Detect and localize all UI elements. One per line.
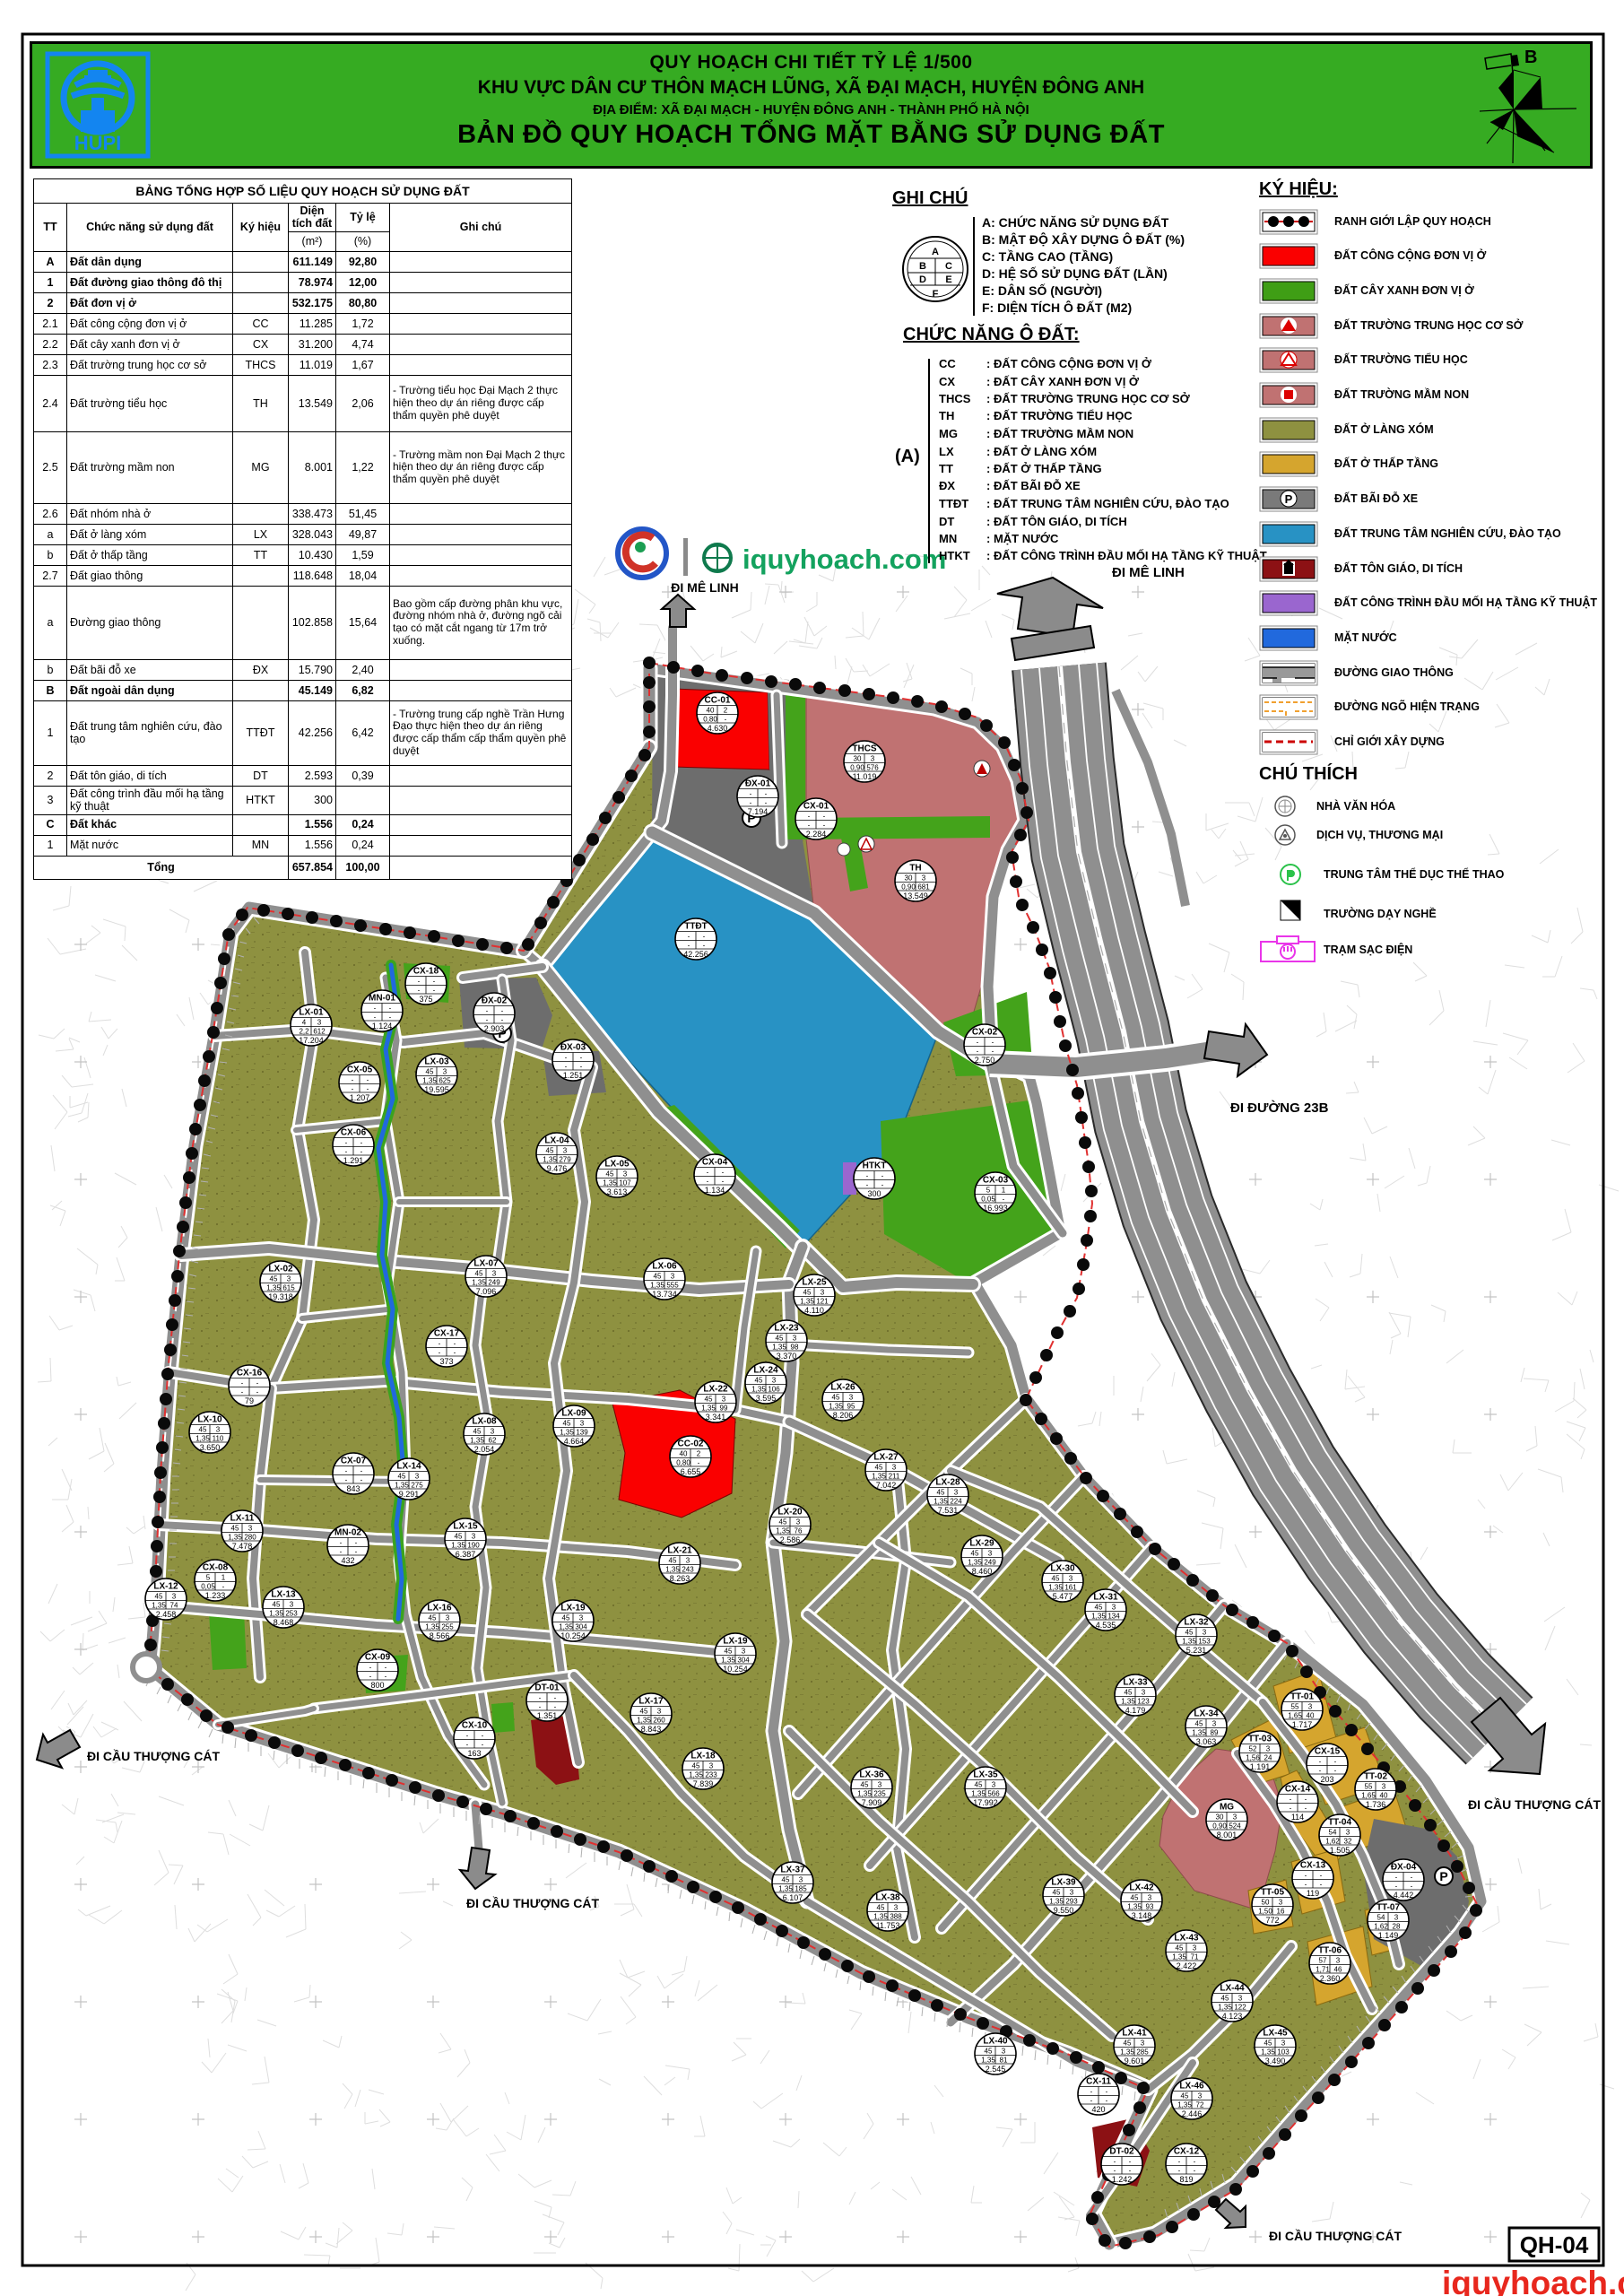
svg-text:1,35: 1,35 (266, 1284, 281, 1292)
svg-text:3: 3 (892, 1464, 897, 1472)
svg-text:45: 45 (231, 1525, 239, 1533)
svg-text:279: 279 (559, 1156, 571, 1164)
svg-text:6.655: 6.655 (681, 1467, 701, 1476)
svg-text:0,90: 0,90 (1212, 1822, 1227, 1831)
svg-text:QH-04: QH-04 (1520, 2231, 1589, 2258)
svg-text:32: 32 (1344, 1838, 1352, 1846)
svg-text:5.231: 5.231 (1186, 1646, 1207, 1655)
svg-text:4.630: 4.630 (708, 724, 728, 733)
svg-text:1,35: 1,35 (829, 1403, 843, 1411)
svg-text:LX-16: LX-16 (427, 1604, 452, 1613)
svg-text:1,35: 1,35 (470, 1437, 484, 1445)
svg-text:-: - (1320, 1881, 1323, 1889)
svg-text:3: 3 (1069, 1575, 1073, 1583)
svg-text:TT-05: TT-05 (1261, 1888, 1285, 1898)
svg-text:-: - (1114, 2167, 1116, 2175)
svg-text:1,35: 1,35 (1172, 1953, 1186, 1961)
svg-text:-: - (486, 1016, 489, 1024)
svg-text:-: - (1334, 1758, 1337, 1766)
svg-text:2.458: 2.458 (156, 1610, 177, 1619)
svg-text:P: P (1285, 492, 1293, 506)
svg-text:1,62: 1,62 (1325, 1838, 1340, 1846)
svg-text:2: 2 (697, 1450, 701, 1458)
svg-text:-: - (454, 1340, 456, 1348)
svg-text:1.505: 1.505 (1330, 1846, 1350, 1855)
svg-text:-: - (360, 1148, 363, 1156)
svg-text:134: 134 (1107, 1613, 1120, 1621)
svg-text:7.909: 7.909 (862, 1798, 882, 1807)
svg-text:3: 3 (472, 1533, 476, 1541)
svg-text:3: 3 (443, 1068, 447, 1076)
svg-text:819: 819 (1179, 2175, 1193, 2184)
svg-text:1,35: 1,35 (543, 1156, 557, 1164)
svg-text:45: 45 (669, 1557, 677, 1565)
svg-text:1,35: 1,35 (665, 1566, 680, 1574)
svg-text:1,35: 1,35 (981, 2057, 995, 2065)
svg-text:10.254: 10.254 (560, 1631, 586, 1640)
svg-text:-: - (369, 1673, 372, 1681)
svg-text:1,35: 1,35 (395, 1482, 409, 1490)
svg-text:CC-02: CC-02 (678, 1439, 704, 1449)
svg-text:3: 3 (216, 1426, 221, 1434)
svg-text:1,35: 1,35 (1120, 2048, 1134, 2057)
svg-text:LX-18: LX-18 (690, 1752, 716, 1761)
svg-text:99: 99 (720, 1405, 728, 1413)
svg-text:3.341: 3.341 (706, 1413, 726, 1422)
svg-text:0,80: 0,80 (676, 1459, 690, 1467)
svg-text:42.256: 42.256 (683, 950, 708, 959)
svg-text:119: 119 (1307, 1889, 1319, 1898)
svg-text:1,35: 1,35 (650, 1282, 664, 1290)
svg-text:LX-25: LX-25 (802, 1278, 827, 1288)
svg-text:ĐX-02: ĐX-02 (482, 996, 508, 1006)
svg-text:1,35: 1,35 (776, 1527, 790, 1535)
svg-text:THCS: THCS (852, 744, 877, 754)
svg-text:45: 45 (398, 1473, 406, 1481)
svg-text:CX-15: CX-15 (1315, 1747, 1341, 1757)
svg-text:1.149: 1.149 (1378, 1931, 1399, 1940)
svg-text:-: - (439, 1349, 441, 1357)
svg-text:11.019: 11.019 (853, 772, 877, 781)
svg-text:P: P (1439, 1869, 1447, 1883)
svg-text:3: 3 (446, 1614, 450, 1622)
svg-text:1,35: 1,35 (721, 1657, 735, 1665)
svg-text:-: - (1319, 1758, 1322, 1766)
svg-text:-: - (750, 790, 752, 798)
svg-text:45: 45 (1124, 2039, 1132, 2048)
svg-text:45: 45 (985, 2048, 993, 2056)
svg-text:304: 304 (737, 1657, 750, 1665)
svg-text:555: 555 (666, 1282, 679, 1290)
svg-text:1.242: 1.242 (1112, 2175, 1133, 2184)
svg-text:17.204: 17.204 (299, 1036, 324, 1045)
svg-text:5: 5 (206, 1574, 211, 1582)
svg-text:-: - (389, 1004, 392, 1013)
svg-text:3: 3 (287, 1275, 291, 1283)
svg-text:0,80: 0,80 (703, 716, 717, 724)
svg-text:-: - (703, 933, 706, 941)
svg-text:81: 81 (1000, 2057, 1008, 2065)
svg-text:3: 3 (1070, 1889, 1074, 1897)
svg-text:LX-37: LX-37 (780, 1865, 805, 1875)
svg-text:-: - (1194, 2158, 1196, 2166)
svg-text:-: - (1395, 1883, 1398, 1891)
svg-text:1,35: 1,35 (1121, 1698, 1135, 1706)
svg-text:4.535: 4.535 (1096, 1621, 1116, 1630)
svg-text:3: 3 (1212, 1720, 1217, 1728)
svg-text:-: - (418, 987, 421, 995)
svg-text:3: 3 (579, 1614, 584, 1622)
svg-text:1.207: 1.207 (350, 1093, 370, 1102)
svg-text:45: 45 (429, 1614, 437, 1622)
svg-text:524: 524 (1229, 1822, 1241, 1831)
svg-text:-: - (345, 1476, 348, 1484)
svg-text:MN-02: MN-02 (334, 1528, 361, 1538)
svg-text:1,35: 1,35 (934, 1498, 948, 1506)
svg-text:576: 576 (866, 764, 879, 772)
svg-text:-: - (345, 1139, 348, 1147)
svg-text:TT-04: TT-04 (1328, 1818, 1352, 1828)
svg-text:-: - (1305, 1805, 1307, 1813)
svg-text:LX-30: LX-30 (1050, 1564, 1075, 1574)
svg-text:LX-12: LX-12 (153, 1582, 178, 1592)
svg-text:-: - (823, 822, 826, 830)
svg-text:LX-24: LX-24 (753, 1366, 778, 1376)
svg-text:45: 45 (1221, 1995, 1229, 2003)
svg-text:CX-07: CX-07 (341, 1457, 367, 1466)
svg-text:45: 45 (606, 1170, 614, 1178)
svg-text:1,35: 1,35 (472, 1279, 486, 1287)
svg-text:-: - (482, 1732, 484, 1740)
svg-text:1,62: 1,62 (1374, 1923, 1388, 1931)
svg-text:1,35: 1,35 (1091, 1613, 1106, 1621)
svg-text:40: 40 (707, 707, 715, 715)
svg-text:243: 243 (682, 1566, 694, 1574)
svg-text:0,05: 0,05 (201, 1583, 215, 1591)
svg-text:2: 2 (724, 707, 728, 715)
svg-text:612: 612 (313, 1028, 326, 1036)
svg-text:1,35: 1,35 (1177, 2101, 1192, 2109)
svg-text:LX-22: LX-22 (703, 1385, 728, 1395)
svg-text:1,35: 1,35 (637, 1717, 651, 1725)
svg-text:-: - (256, 1388, 259, 1396)
svg-text:3.490: 3.490 (1265, 2057, 1286, 2066)
svg-text:0,90: 0,90 (901, 883, 916, 891)
svg-text:45: 45 (705, 1396, 713, 1404)
svg-text:3.370: 3.370 (777, 1352, 797, 1361)
svg-text:3: 3 (1279, 1899, 1283, 1907)
svg-text:TT-01: TT-01 (1290, 1692, 1315, 1702)
svg-text:3: 3 (1142, 1689, 1146, 1697)
svg-text:-: - (703, 942, 706, 950)
svg-text:6.387: 6.387 (456, 1550, 476, 1559)
svg-text:8.566: 8.566 (430, 1631, 450, 1640)
svg-text:-: - (977, 1039, 979, 1047)
svg-text:-: - (1129, 2167, 1132, 2175)
svg-text:3: 3 (821, 1289, 825, 1297)
svg-text:1,35: 1,35 (1218, 2004, 1232, 2012)
svg-text:153: 153 (1198, 1638, 1211, 1646)
svg-text:1,35: 1,35 (857, 1790, 872, 1798)
svg-text:ĐX-01: ĐX-01 (745, 779, 771, 789)
svg-text:-: - (750, 799, 752, 807)
svg-text:3.650: 3.650 (200, 1443, 221, 1452)
svg-text:45: 45 (1195, 1720, 1203, 1728)
svg-text:89: 89 (1211, 1729, 1219, 1737)
svg-text:CC-01: CC-01 (705, 696, 731, 706)
svg-text:2.586: 2.586 (780, 1535, 801, 1544)
svg-text:1,35: 1,35 (422, 1077, 437, 1085)
svg-text:30: 30 (1216, 1813, 1224, 1822)
svg-text:LX-08: LX-08 (472, 1417, 497, 1427)
svg-text:CX-16: CX-16 (237, 1369, 263, 1378)
svg-text:ĐI CẦU THƯỢNG CÁT: ĐI CẦU THƯỢNG CÁT (1269, 2229, 1402, 2243)
svg-text:233: 233 (705, 1771, 717, 1779)
svg-text:LX-44: LX-44 (1220, 1984, 1245, 1994)
svg-text:-: - (433, 987, 436, 995)
svg-text:2.903: 2.903 (484, 1024, 505, 1033)
svg-text:40: 40 (1380, 1792, 1388, 1800)
svg-text:3: 3 (722, 1396, 726, 1404)
svg-text:-: - (367, 1076, 369, 1084)
svg-text:3: 3 (172, 1593, 177, 1601)
svg-text:CX-17: CX-17 (434, 1329, 460, 1339)
svg-text:CX-12: CX-12 (1174, 2147, 1200, 2157)
svg-text:TT-03: TT-03 (1248, 1735, 1272, 1744)
svg-text:3: 3 (686, 1557, 690, 1565)
svg-text:28: 28 (1393, 1923, 1401, 1931)
svg-text:-: - (352, 1085, 354, 1093)
svg-text:45: 45 (1264, 2039, 1272, 2048)
svg-text:3: 3 (1233, 1813, 1238, 1822)
svg-text:LX-05: LX-05 (604, 1160, 630, 1170)
svg-text:A: A (932, 247, 939, 257)
svg-text:-: - (454, 1349, 456, 1357)
svg-text:45: 45 (832, 1394, 840, 1402)
svg-text:CX-14: CX-14 (1285, 1785, 1311, 1795)
svg-text:4.179: 4.179 (1125, 1706, 1146, 1715)
svg-text:52: 52 (1249, 1745, 1257, 1753)
svg-text:-: - (881, 1181, 884, 1189)
svg-text:123: 123 (1137, 1698, 1150, 1706)
svg-text:-: - (1305, 1796, 1307, 1804)
svg-text:3: 3 (793, 1335, 797, 1343)
svg-text:2.446: 2.446 (1182, 2109, 1203, 2118)
svg-text:40: 40 (1307, 1712, 1315, 1720)
svg-text:1,35: 1,35 (603, 1179, 617, 1187)
svg-text:3: 3 (580, 1420, 585, 1428)
svg-text:45: 45 (725, 1648, 733, 1656)
svg-text:3: 3 (1148, 1894, 1152, 1902)
svg-text:-: - (881, 1172, 884, 1180)
svg-text:-: - (707, 1169, 709, 1177)
svg-text:-: - (808, 813, 811, 821)
svg-text:1,35: 1,35 (451, 1542, 465, 1550)
svg-text:625: 625 (439, 1077, 451, 1085)
svg-text:3: 3 (1308, 1703, 1313, 1711)
svg-text:45: 45 (199, 1426, 207, 1434)
svg-text:TH: TH (909, 864, 921, 874)
svg-text:-: - (866, 1181, 869, 1189)
svg-text:LX-31: LX-31 (1093, 1593, 1118, 1603)
svg-text:-: - (1290, 1805, 1292, 1813)
svg-text:8.263: 8.263 (670, 1574, 690, 1583)
svg-text:615: 615 (282, 1284, 295, 1292)
svg-text:3: 3 (671, 1273, 675, 1281)
svg-text:50: 50 (1262, 1899, 1270, 1907)
svg-text:45: 45 (546, 1147, 554, 1155)
svg-text:-: - (539, 1703, 542, 1711)
svg-text:CX-01: CX-01 (803, 802, 829, 812)
svg-text:121: 121 (816, 1298, 829, 1306)
svg-text:1,65: 1,65 (1288, 1712, 1302, 1720)
svg-text:103: 103 (1277, 2048, 1290, 2057)
svg-text:3: 3 (1198, 2092, 1203, 2100)
svg-text:-: - (256, 1379, 259, 1387)
svg-text:-: - (1395, 1874, 1398, 1882)
svg-text:-: - (765, 799, 768, 807)
svg-text:249: 249 (488, 1279, 500, 1287)
svg-text:-: - (688, 942, 690, 950)
svg-text:-: - (992, 1048, 994, 1056)
svg-text:3.148: 3.148 (1132, 1911, 1152, 1920)
svg-text:HTKT: HTKT (863, 1161, 887, 1171)
svg-text:-: - (360, 1139, 363, 1147)
svg-text:45: 45 (803, 1289, 812, 1297)
svg-text:280: 280 (244, 1534, 256, 1542)
svg-text:TT-06: TT-06 (1318, 1946, 1342, 1956)
svg-text:3.613: 3.613 (607, 1187, 628, 1196)
svg-text:1,35: 1,35 (559, 1623, 573, 1631)
svg-text:-: - (1411, 1883, 1413, 1891)
svg-text:45: 45 (1053, 1889, 1061, 1897)
svg-text:LX-39: LX-39 (1051, 1878, 1076, 1888)
svg-text:45: 45 (776, 1335, 784, 1343)
svg-text:3: 3 (317, 1019, 322, 1027)
svg-text:3: 3 (1336, 1957, 1341, 1965)
svg-text:CX-04: CX-04 (702, 1158, 728, 1168)
svg-text:3: 3 (922, 874, 926, 883)
svg-text:4.664: 4.664 (564, 1437, 585, 1446)
svg-text:1,65: 1,65 (1361, 1792, 1376, 1800)
svg-text:4.123: 4.123 (1222, 2012, 1243, 2021)
svg-text:1.134: 1.134 (705, 1186, 725, 1195)
svg-text:3: 3 (1281, 2039, 1286, 2048)
svg-text:-: - (385, 1673, 387, 1681)
svg-text:3: 3 (1193, 1944, 1197, 1952)
svg-text:843: 843 (346, 1484, 360, 1493)
svg-text:7.839: 7.839 (693, 1779, 714, 1788)
svg-text:45: 45 (273, 1601, 281, 1609)
svg-text:CX-05: CX-05 (347, 1065, 373, 1075)
svg-text:-: - (1290, 1796, 1292, 1804)
svg-text:-: - (1003, 1196, 1005, 1204)
svg-text:3: 3 (894, 1904, 899, 1912)
svg-text:D: D (919, 274, 926, 285)
svg-text:375: 375 (419, 995, 432, 1004)
svg-text:1,35: 1,35 (772, 1344, 786, 1352)
svg-text:-: - (554, 1694, 557, 1702)
svg-text:-: - (433, 978, 436, 986)
svg-text:163: 163 (467, 1749, 481, 1758)
svg-text:19.318: 19.318 (268, 1292, 293, 1301)
svg-text:-: - (501, 1007, 504, 1015)
svg-text:1,50: 1,50 (1258, 1908, 1272, 1916)
svg-text:3: 3 (1141, 2039, 1145, 2048)
svg-text:253: 253 (285, 1610, 298, 1618)
svg-text:-: - (1411, 1874, 1413, 1882)
svg-text:566: 566 (987, 1790, 1000, 1798)
svg-text:772: 772 (1265, 1916, 1279, 1925)
svg-text:HUPI: HUPI (74, 132, 122, 154)
svg-text:45: 45 (270, 1275, 278, 1283)
svg-text:1,35: 1,35 (778, 1885, 793, 1893)
svg-text:161: 161 (1064, 1584, 1077, 1592)
svg-text:1,35: 1,35 (751, 1386, 766, 1394)
svg-text:-: - (1320, 1872, 1323, 1880)
svg-text:9.601: 9.601 (1125, 2057, 1145, 2066)
svg-text:-: - (539, 1694, 542, 1702)
svg-text:2.284: 2.284 (806, 830, 827, 839)
svg-text:98: 98 (791, 1344, 799, 1352)
svg-text:2.750: 2.750 (975, 1056, 995, 1065)
svg-text:93: 93 (1146, 1903, 1154, 1911)
svg-text:3: 3 (623, 1170, 628, 1178)
svg-text:ĐI CẦU THƯỢNG CÁT: ĐI CẦU THƯỢNG CÁT (87, 1749, 220, 1763)
svg-text:3: 3 (878, 1781, 882, 1789)
svg-text:9.476: 9.476 (547, 1164, 568, 1173)
svg-text:-: - (725, 716, 727, 724)
svg-text:1,35: 1,35 (968, 1559, 982, 1567)
svg-text:1,35: 1,35 (701, 1405, 716, 1413)
svg-text:373: 373 (439, 1357, 453, 1366)
svg-text:3: 3 (492, 1270, 497, 1278)
svg-text:7.096: 7.096 (476, 1287, 497, 1296)
svg-text:19.595: 19.595 (424, 1085, 449, 1094)
svg-text:45: 45 (654, 1273, 662, 1281)
svg-text:235: 235 (873, 1790, 886, 1798)
svg-text:LX-35: LX-35 (973, 1770, 998, 1780)
svg-text:TTĐT: TTĐT (684, 922, 708, 932)
svg-text:45: 45 (755, 1377, 763, 1385)
svg-text:45: 45 (640, 1708, 648, 1716)
svg-text:CX-03: CX-03 (983, 1176, 1009, 1186)
svg-text:-: - (355, 1548, 358, 1556)
svg-text:7.531: 7.531 (938, 1506, 959, 1515)
svg-text:275: 275 (411, 1482, 423, 1490)
svg-text:224: 224 (950, 1498, 962, 1506)
svg-text:388: 388 (890, 1913, 902, 1921)
svg-text:9.291: 9.291 (399, 1490, 420, 1499)
svg-text:2.422: 2.422 (1177, 1961, 1197, 1970)
svg-text:CX-10: CX-10 (462, 1721, 488, 1731)
svg-text:-: - (1319, 1767, 1322, 1775)
svg-text:1,35: 1,35 (1049, 1898, 1064, 1906)
svg-text:-: - (722, 1178, 725, 1186)
svg-text:-: - (367, 1085, 369, 1093)
svg-text:3: 3 (1382, 1783, 1386, 1791)
svg-text:-: - (707, 1178, 709, 1186)
svg-text:46: 46 (1334, 1966, 1342, 1974)
svg-text:LX-43: LX-43 (1174, 1934, 1199, 1944)
svg-text:4.110: 4.110 (804, 1306, 824, 1315)
svg-text:45: 45 (473, 1428, 482, 1436)
svg-text:-: - (466, 1741, 469, 1749)
svg-text:3: 3 (799, 1876, 803, 1884)
svg-text:2.054: 2.054 (474, 1445, 495, 1454)
svg-text:LX-19: LX-19 (723, 1637, 748, 1647)
svg-text:45: 45 (155, 1593, 163, 1601)
